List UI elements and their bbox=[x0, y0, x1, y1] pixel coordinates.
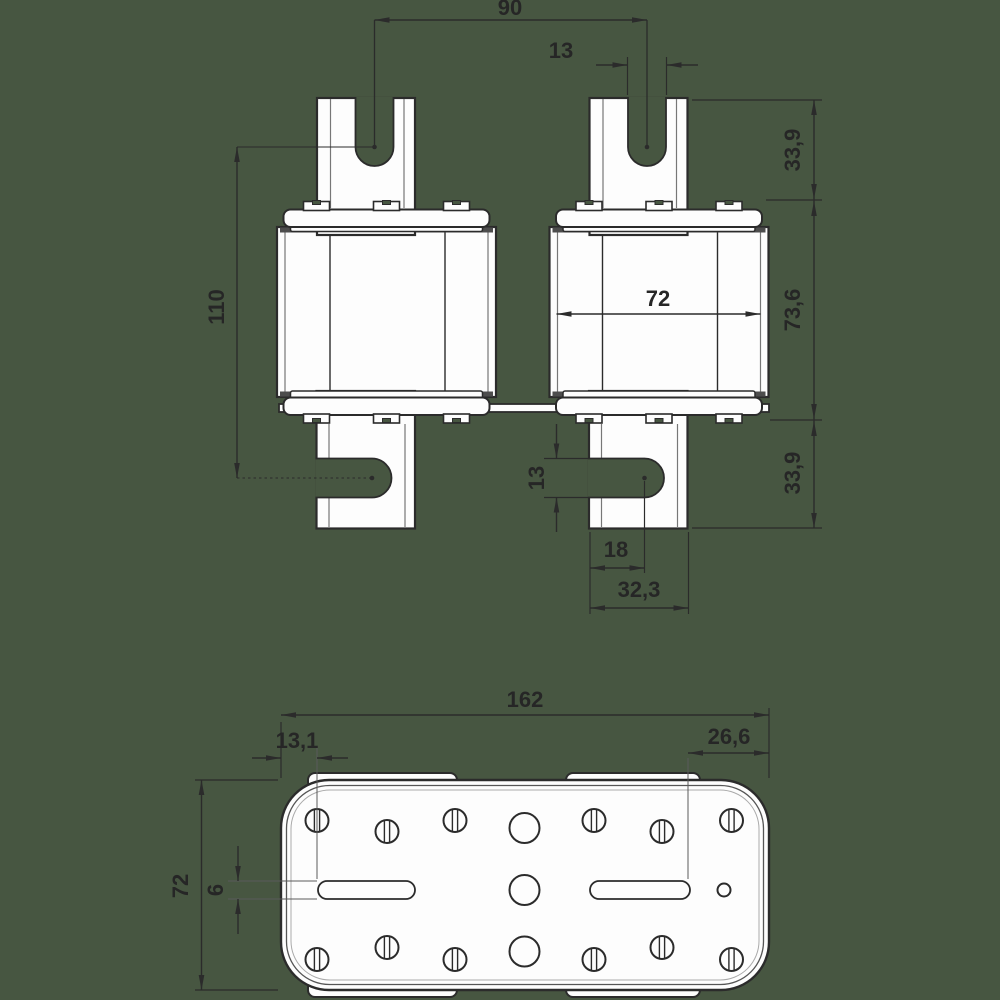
dim-13-bottom-label: 13 bbox=[524, 466, 549, 490]
pilot-hole bbox=[718, 884, 731, 897]
left-bottom-slot-center bbox=[370, 476, 375, 481]
right-bottom-slot-center bbox=[642, 476, 647, 481]
dim-6-label: 6 bbox=[203, 884, 228, 896]
dim-bottom-slot-width: 13 bbox=[524, 424, 588, 532]
plate-slot-left bbox=[318, 881, 415, 899]
dim-736-label: 73,6 bbox=[780, 289, 805, 332]
right-top-slot-center bbox=[645, 145, 650, 150]
dim-72-plate-label: 72 bbox=[168, 874, 193, 898]
dim-131-label: 13,1 bbox=[276, 728, 319, 753]
dim-266-label: 26,6 bbox=[708, 724, 751, 749]
dim-top-slot-width: 13 bbox=[549, 38, 698, 95]
dim-13-top-label: 13 bbox=[549, 38, 573, 63]
center-hole-bottom bbox=[510, 937, 540, 967]
right-fuse-body bbox=[550, 227, 769, 397]
bottom-view: 162 13,1 26,6 72 bbox=[168, 687, 769, 997]
dim-90-label: 90 bbox=[498, 0, 522, 20]
dim-162-label: 162 bbox=[507, 687, 544, 712]
front-view: 90 13 33,9 73,6 33,9 bbox=[204, 0, 822, 614]
center-hole-top bbox=[510, 813, 540, 843]
fuse-technical-drawing: 90 13 33,9 73,6 33,9 bbox=[0, 0, 1000, 1000]
center-hole-middle bbox=[510, 875, 540, 905]
dim-339-top-label: 33,9 bbox=[780, 129, 805, 172]
dim-overall-width: 162 bbox=[281, 687, 769, 778]
dim-339-bottom-label: 33,9 bbox=[780, 452, 805, 495]
left-fuse-body bbox=[277, 227, 496, 397]
dim-110-label: 110 bbox=[204, 289, 229, 325]
dim-72-body-label: 72 bbox=[646, 286, 670, 311]
dim-18-label: 18 bbox=[604, 537, 628, 562]
dim-323-label: 32,3 bbox=[618, 577, 661, 602]
drawing-canvas: 90 13 33,9 73,6 33,9 bbox=[0, 0, 1000, 1000]
plate-slot-right bbox=[590, 881, 690, 899]
